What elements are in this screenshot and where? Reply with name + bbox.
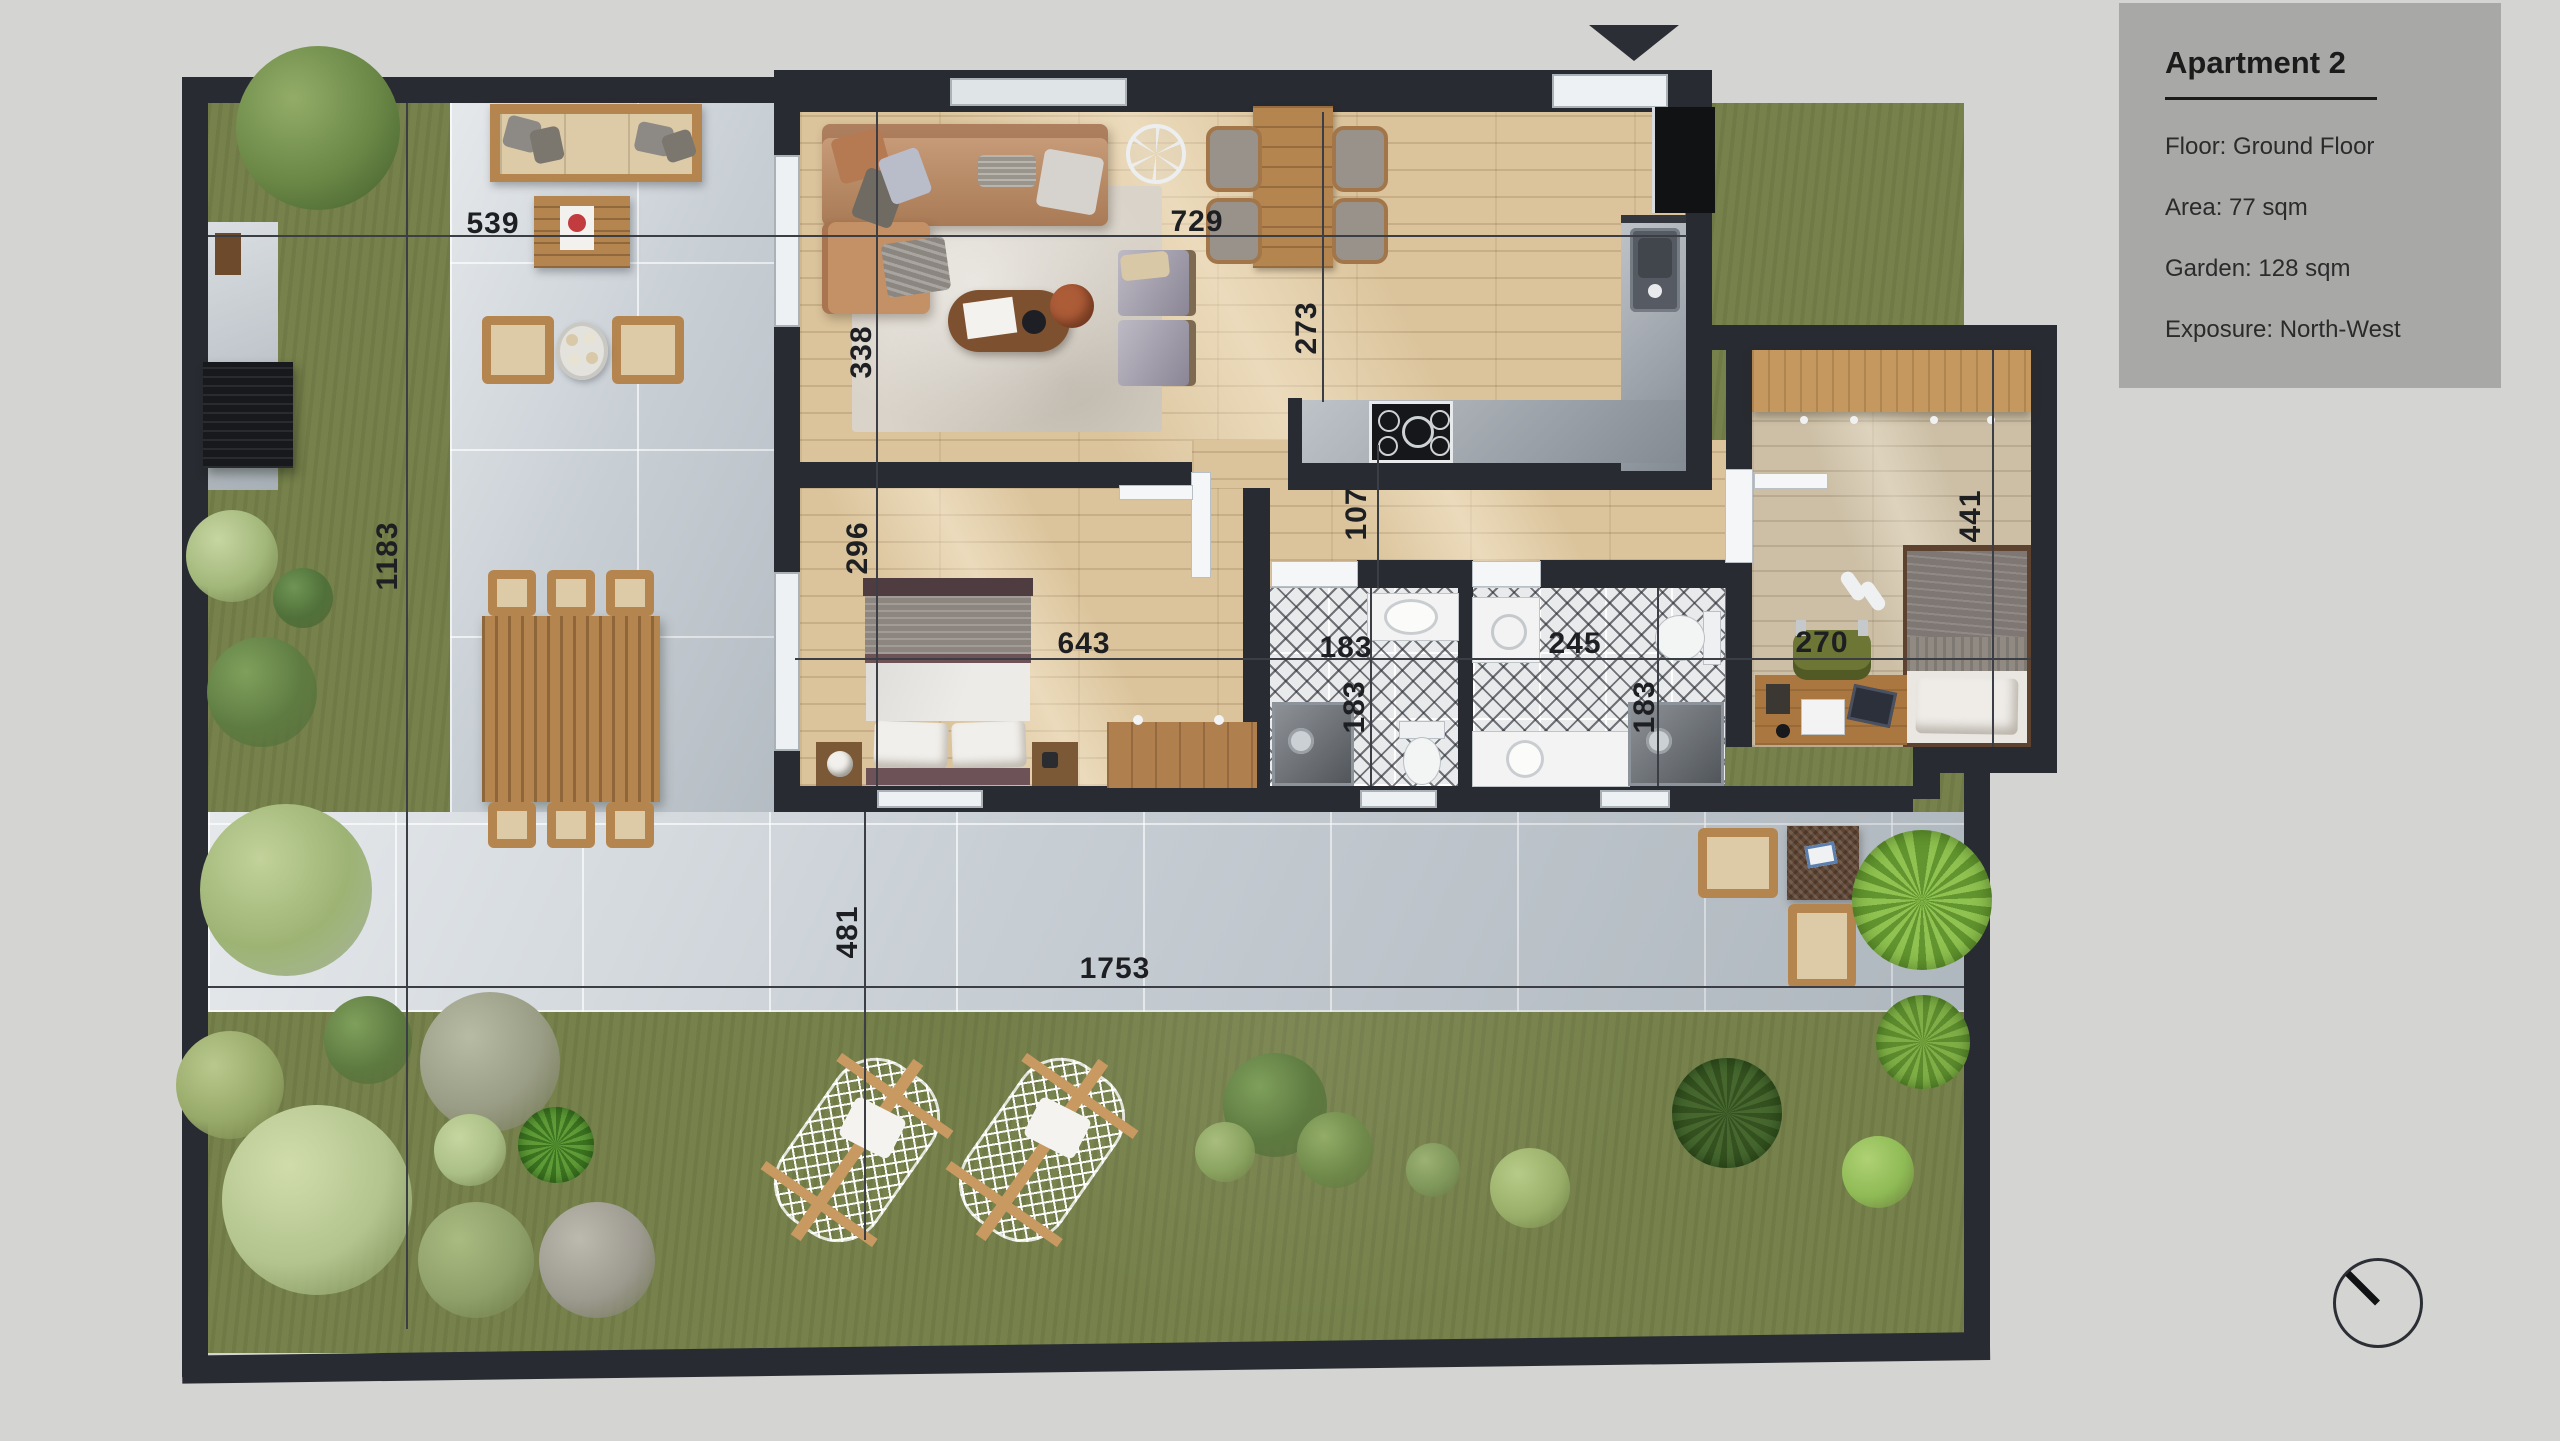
cup xyxy=(584,332,596,344)
bathroom2-door xyxy=(1473,562,1540,586)
printer xyxy=(1802,700,1844,734)
bed1-blanket xyxy=(865,596,1031,654)
bathroom-divider-wall xyxy=(1458,588,1473,786)
bush xyxy=(1297,1112,1373,1188)
info-panel: Apartment 2 Floor: Ground Floor Area: 77… xyxy=(2119,3,2501,388)
bed1-footboard xyxy=(866,768,1030,785)
bedroom1-door-leaf xyxy=(1120,486,1192,499)
bath2-toilet-bowl xyxy=(1656,616,1704,660)
dimension-line xyxy=(1992,350,1994,747)
cup xyxy=(566,334,578,346)
dim-label-terrace-bottom-height: 481 xyxy=(833,905,863,958)
shower-head-icon xyxy=(1288,728,1314,754)
dim-label-kitchen-height: 273 xyxy=(1292,301,1322,354)
kitchen-sink xyxy=(1630,228,1680,312)
dimension-line xyxy=(876,112,878,786)
tree xyxy=(222,1105,412,1295)
wing-wall-top xyxy=(1712,325,2057,350)
outdoor-armchair xyxy=(482,316,554,384)
bedroom2-door-leaf xyxy=(1755,474,1827,488)
bedroom1-window-left xyxy=(774,572,800,751)
nightstand-decor xyxy=(1042,752,1058,768)
bush xyxy=(273,568,333,628)
notebook xyxy=(1766,684,1790,714)
outdoor-armchair xyxy=(612,316,684,384)
bed1-pillow xyxy=(951,721,1027,770)
entrance-door xyxy=(1552,74,1668,108)
dining-chair xyxy=(1332,198,1388,264)
armchair xyxy=(1118,320,1196,386)
dim-label-garden-height: 1183 xyxy=(373,521,403,590)
dim-label-bedroom2-width: 270 xyxy=(1795,628,1848,658)
bathroom2-window-bottom xyxy=(1600,790,1670,808)
wardrobe xyxy=(1752,350,2031,412)
cup xyxy=(568,354,580,366)
round-side-table xyxy=(556,322,608,380)
dining-chair xyxy=(1206,126,1262,192)
counter-end-cap xyxy=(1288,398,1302,463)
mouse xyxy=(1776,724,1790,738)
bath1-toilet-bowl xyxy=(1404,738,1440,784)
floorplan-canvas: 539 729 338 273 107 296 643 183 183 245 … xyxy=(0,0,2560,1441)
bed2-blanket-fold xyxy=(1907,637,2027,671)
garden-chair xyxy=(606,570,654,616)
dim-label-bedroom1-height: 296 xyxy=(843,521,873,574)
dining-table xyxy=(1253,106,1333,268)
planter-bowl xyxy=(1050,284,1094,328)
bath1-sink xyxy=(1384,599,1438,635)
bedroom1-window-bottom xyxy=(877,790,983,808)
sink-bowl xyxy=(1638,238,1672,278)
dim-label-bath1-width: 183 xyxy=(1319,633,1372,663)
compass-needle xyxy=(2345,1271,2380,1306)
tree xyxy=(236,46,400,210)
bush xyxy=(434,1114,506,1186)
burner xyxy=(1430,436,1450,456)
dimension-line xyxy=(208,986,1964,988)
bedroom1-wall-top xyxy=(774,462,1192,488)
bath2-vanity xyxy=(1473,732,1629,786)
hanger-knob xyxy=(1850,416,1858,424)
palm-plant xyxy=(1672,1058,1782,1168)
hanger-knob xyxy=(1800,416,1808,424)
bush xyxy=(418,1202,534,1318)
dimension-line xyxy=(208,235,1687,237)
bed2-blanket xyxy=(1907,551,2027,637)
burner xyxy=(1378,410,1400,432)
palm-plant xyxy=(1852,830,1992,970)
washer-drum xyxy=(1491,614,1527,650)
palm-plant xyxy=(1876,995,1970,1089)
bedroom2-door xyxy=(1726,470,1752,562)
bathroom2-wall-top xyxy=(1540,560,1726,588)
garden-chair xyxy=(488,802,536,848)
dimension-line xyxy=(864,812,866,1240)
apartment-title: Apartment 2 xyxy=(2165,45,2501,81)
magazine-art xyxy=(568,214,586,232)
garden-chair xyxy=(547,570,595,616)
dim-label-living-width: 729 xyxy=(1170,207,1223,237)
bush xyxy=(186,510,278,602)
dimension-line xyxy=(406,103,408,1329)
dresser-knob xyxy=(1133,715,1143,725)
bush xyxy=(207,637,317,747)
throw-blanket xyxy=(881,236,952,298)
garden-chair xyxy=(547,802,595,848)
garden-side-table xyxy=(215,233,241,275)
info-floor: Floor: Ground Floor xyxy=(2165,133,2501,161)
living-window-top xyxy=(950,78,1127,106)
burner xyxy=(1430,410,1450,430)
living-window-left xyxy=(774,155,800,327)
bath2-toilet-tank xyxy=(1704,612,1720,664)
bathrooms-wall-mid-top xyxy=(1357,560,1473,588)
cup xyxy=(586,352,598,364)
burner xyxy=(1378,436,1398,456)
bathroom1-window-bottom xyxy=(1360,790,1437,808)
dimension-line xyxy=(1322,112,1324,402)
bath1-toilet-tank xyxy=(1400,722,1444,738)
bed1-pillow xyxy=(873,721,949,770)
wing-wall-connector xyxy=(1913,747,1940,799)
dimension-line xyxy=(1377,445,1379,588)
bath2-sink xyxy=(1506,740,1544,778)
bush xyxy=(1490,1148,1570,1228)
chair-arm xyxy=(1858,620,1868,636)
fridge xyxy=(1652,107,1715,213)
dim-label-bedroom2-height: 441 xyxy=(1956,489,1986,542)
info-area: Area: 77 sqm xyxy=(2165,194,2501,222)
bush xyxy=(324,996,412,1084)
compass-icon xyxy=(2333,1258,2423,1348)
garden-chair xyxy=(488,570,536,616)
bush xyxy=(1195,1122,1255,1182)
dresser xyxy=(1107,722,1257,788)
table-decor xyxy=(1022,310,1046,334)
dim-label-hall-height: 107 xyxy=(1342,487,1372,540)
dining-chair xyxy=(1332,126,1388,192)
info-garden: Garden: 128 sqm xyxy=(2165,255,2501,283)
garden-dining-table xyxy=(482,616,660,802)
magazine xyxy=(963,297,1018,340)
ceiling-fan-icon xyxy=(1126,124,1186,184)
dresser-knob xyxy=(1214,715,1224,725)
table-lamp xyxy=(827,751,853,777)
wing-wall-right xyxy=(2031,325,2057,773)
dim-label-bath1-height: 183 xyxy=(1340,680,1370,733)
kitchen-counter-bottom xyxy=(1302,400,1686,463)
entrance-arrow-icon xyxy=(1589,25,1679,61)
title-underline xyxy=(2165,97,2377,100)
tree xyxy=(200,804,372,976)
bedroom1-door xyxy=(1192,473,1210,577)
armchair-throw xyxy=(1120,251,1170,282)
dim-label-terrace-top: 539 xyxy=(466,209,519,239)
patio-lounge-chair xyxy=(1698,828,1778,898)
bed1-bench xyxy=(863,578,1033,596)
bed2-pillow xyxy=(1916,677,2019,735)
bathroom1-door xyxy=(1272,562,1357,586)
dim-label-bath2-height: 183 xyxy=(1630,680,1660,733)
info-exposure: Exposure: North-West xyxy=(2165,316,2501,344)
dim-label-living-height: 338 xyxy=(847,325,877,378)
bed1-sheet xyxy=(866,663,1030,721)
sofa-pillow xyxy=(978,155,1036,187)
dim-label-bath2-width: 245 xyxy=(1548,629,1601,659)
bush xyxy=(1406,1143,1460,1197)
dim-label-bedroom1-width: 643 xyxy=(1057,629,1110,659)
sink-faucet-icon xyxy=(1648,284,1662,298)
bush xyxy=(518,1107,594,1183)
bush xyxy=(539,1202,655,1318)
bbq-grill xyxy=(203,362,293,468)
cooktop xyxy=(1372,404,1450,460)
plot-wall-left xyxy=(182,77,208,1377)
garden-chair xyxy=(606,802,654,848)
hanger-knob xyxy=(1930,416,1938,424)
patio-lounge-chair xyxy=(1788,904,1856,988)
dim-label-terrace-bottom-width: 1753 xyxy=(1080,954,1151,984)
sofa-pillow xyxy=(1035,148,1104,216)
bush xyxy=(1842,1136,1914,1208)
